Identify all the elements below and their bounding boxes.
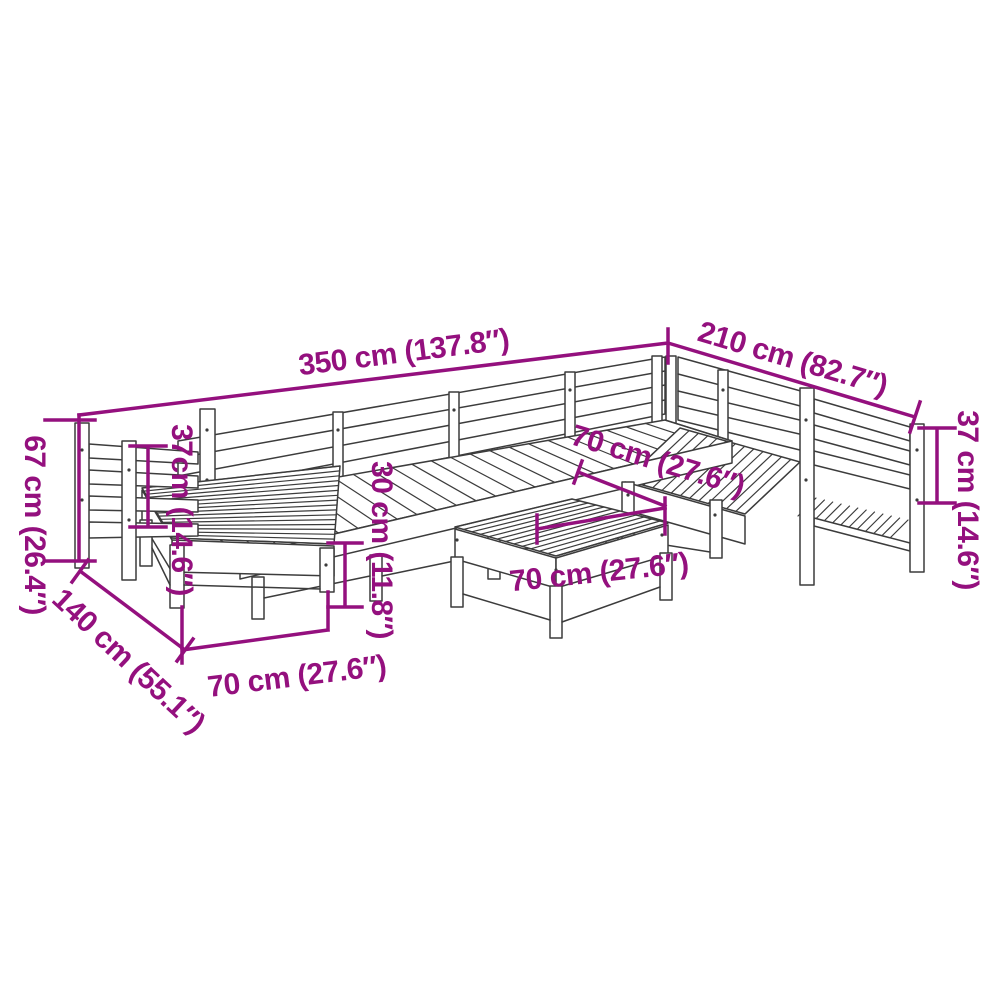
right-armrest	[798, 388, 924, 585]
product-image-canvas: 350 cm (137.8″) 210 cm (82.7″) 67 cm (26…	[0, 0, 1000, 1000]
dimension-label-backrest-height-left: 37cm (14.6″)	[165, 424, 198, 596]
garden-sofa-set-dimension-illustration: 350 cm (137.8″) 210 cm (82.7″) 67 cm (26…	[0, 0, 1000, 1000]
dim-backrest-height-right: 37 cm (14.6″)	[919, 410, 984, 590]
dimension-label-backrest-height-right: 37 cm (14.6″)	[951, 410, 984, 590]
dimension-label-seat-height: 30 cm (11.8″)	[365, 461, 398, 639]
dim-module-width: 70 cm (27.6″)	[182, 592, 388, 704]
dimension-label-module-width: 70 cm (27.6″)	[206, 649, 388, 704]
dimension-label-overall-height: 67 cm (26.4″)	[18, 435, 51, 615]
dimension-label-overall-width: 350 cm (137.8″)	[297, 323, 511, 382]
